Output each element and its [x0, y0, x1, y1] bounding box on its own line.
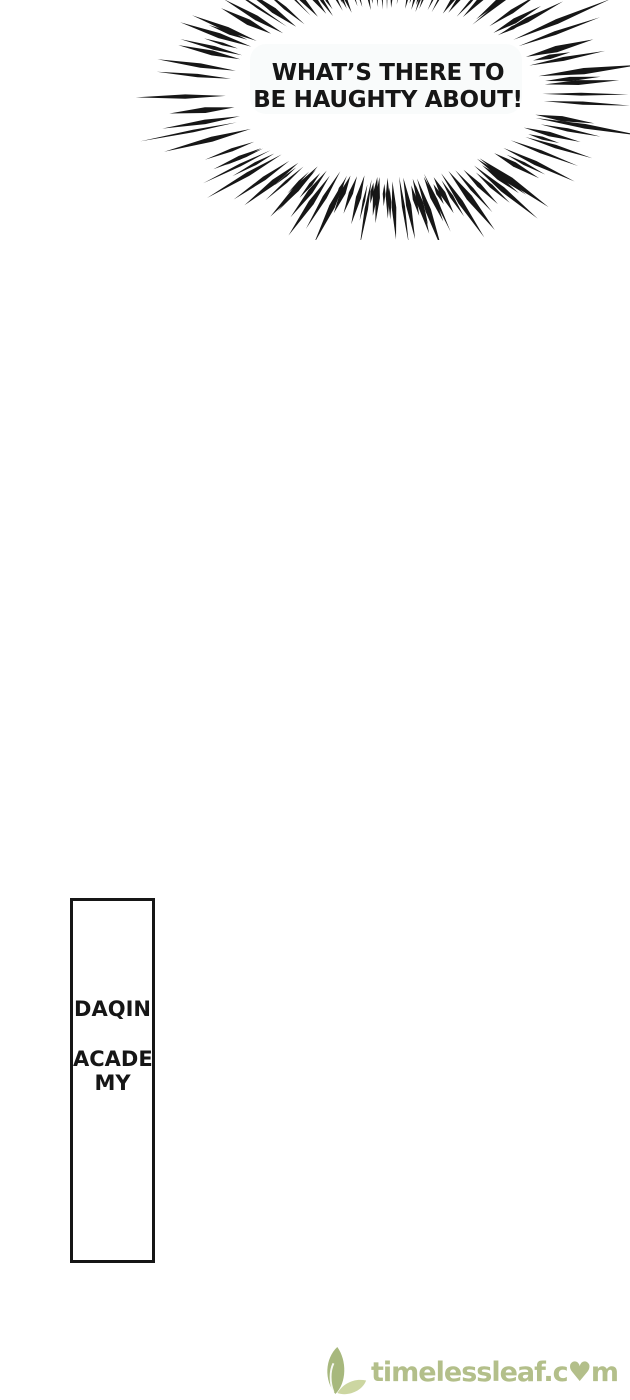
sign-line-2: ACADE [73, 1047, 152, 1071]
site-watermark: timelessleaf.c♥m [321, 1340, 618, 1394]
watermark-text: timelessleaf.c♥m [371, 1359, 618, 1394]
academy-sign: DAQIN ACADE MY [70, 898, 155, 1263]
speech-burst: WHAT’S THERE TO BE HAUGHTY ABOUT! [0, 0, 630, 240]
sign-line-3: MY [73, 1071, 152, 1095]
speech-line-2: BE HAUGHTY ABOUT! [253, 87, 522, 114]
speech-line-1: WHAT’S THERE TO [253, 60, 522, 87]
burst-speedlines-art [0, 0, 630, 240]
leaf-logo-icon [321, 1344, 369, 1396]
manga-page: WHAT’S THERE TO BE HAUGHTY ABOUT! DAQIN … [0, 0, 630, 1400]
sign-line-1: DAQIN [73, 997, 152, 1021]
speech-text: WHAT’S THERE TO BE HAUGHTY ABOUT! [253, 60, 522, 114]
